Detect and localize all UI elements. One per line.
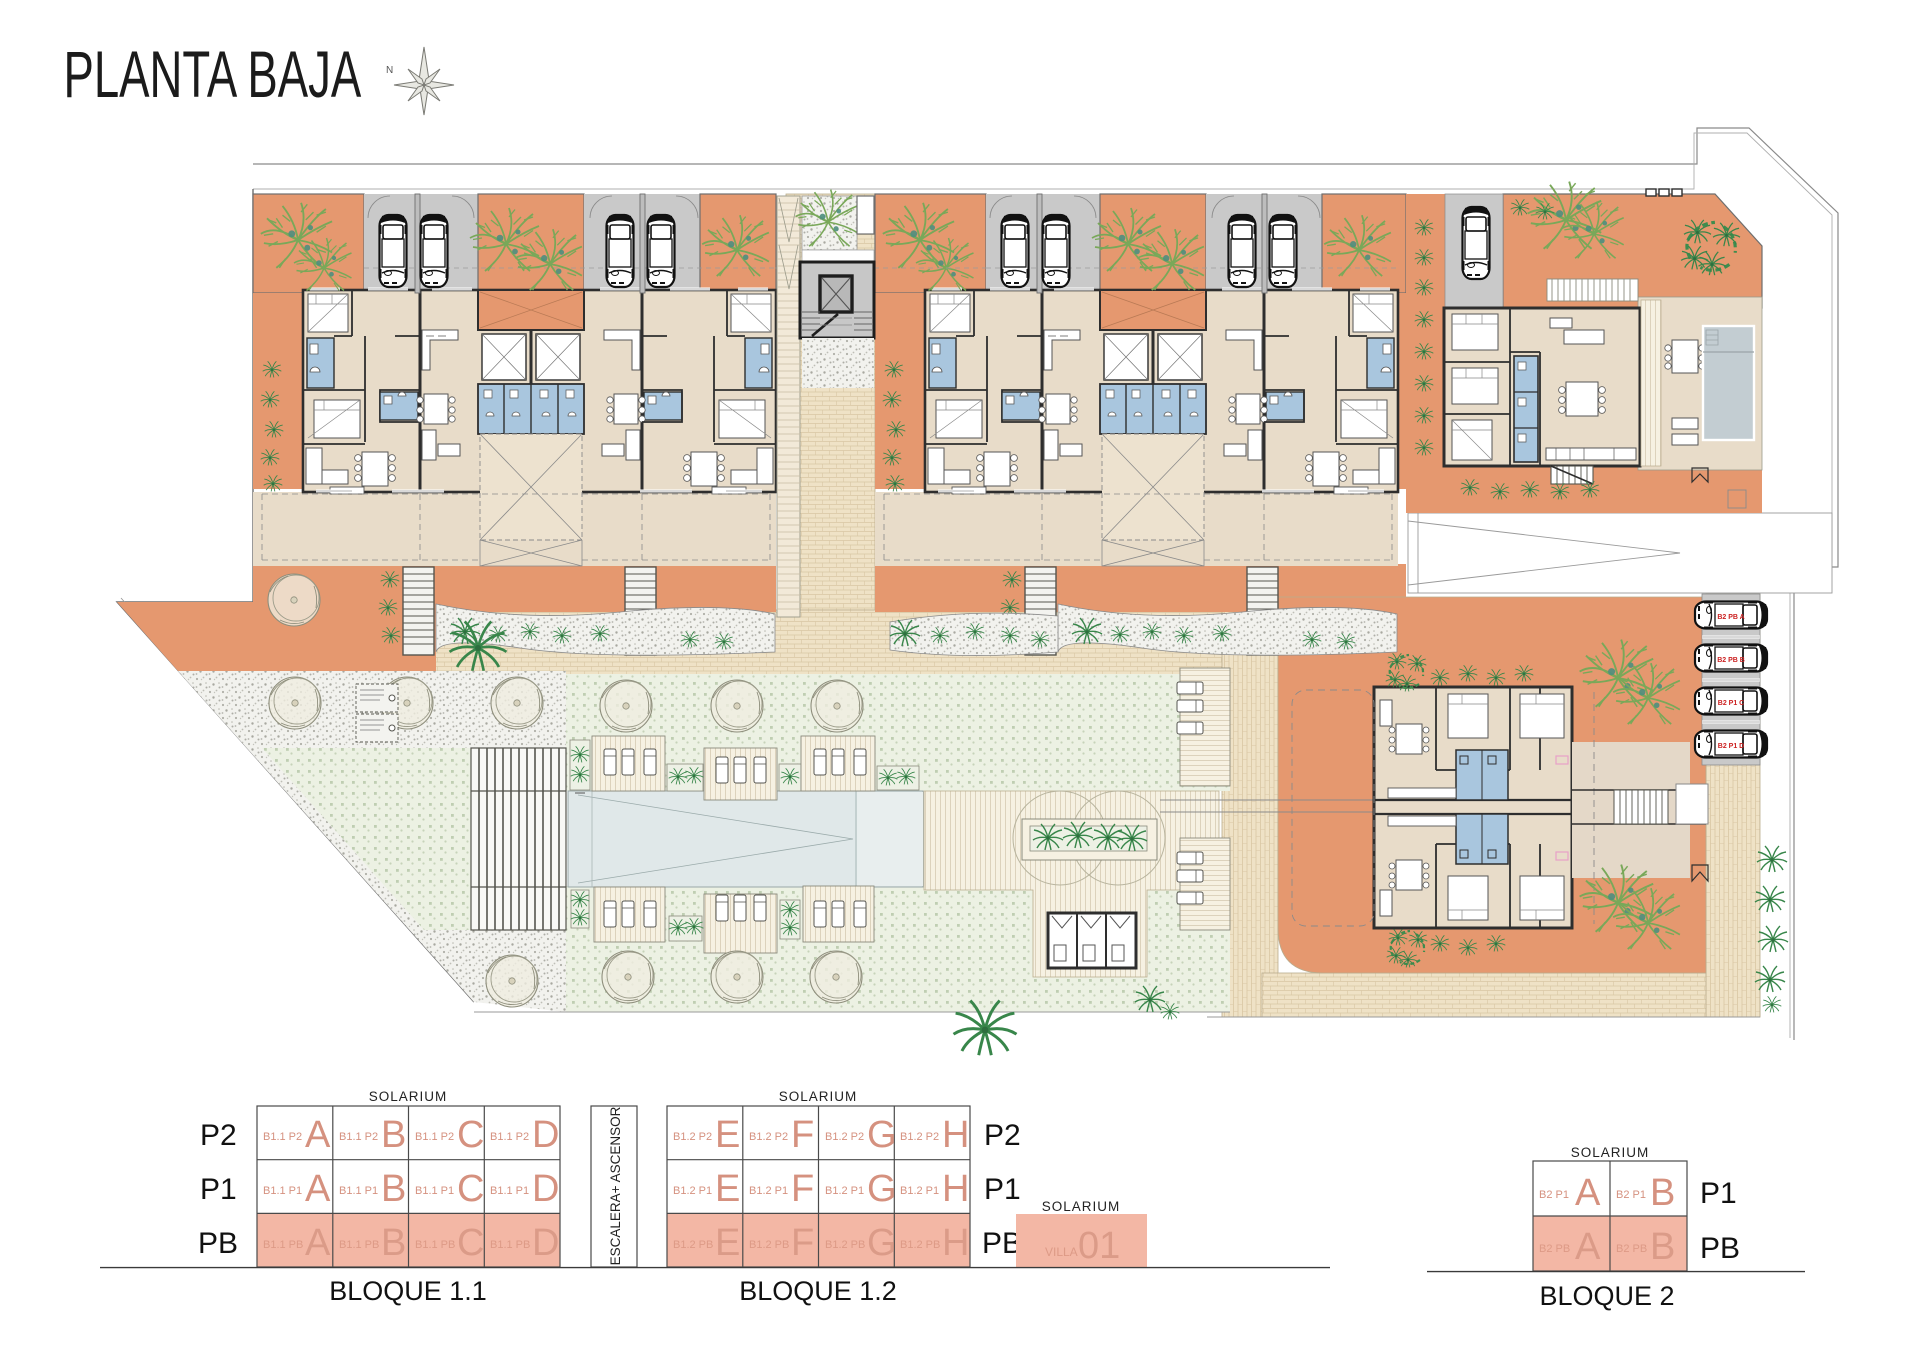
svg-text:PB: PB [1700,1232,1740,1265]
svg-text:B1.1 P1: B1.1 P1 [263,1185,302,1197]
svg-text:B1.1 P2: B1.1 P2 [490,1131,529,1143]
svg-text:B2 PB: B2 PB [1539,1243,1570,1255]
svg-text:SOLARIUM: SOLARIUM [1571,1145,1650,1160]
svg-text:E: E [715,1168,740,1210]
svg-text:B1.1 PB: B1.1 PB [415,1239,455,1251]
svg-text:PLANTA BAJA: PLANTA BAJA [63,39,361,112]
svg-text:F: F [791,1168,814,1210]
svg-text:B1.2 P2: B1.2 P2 [900,1131,939,1143]
svg-text:SOLARIUM: SOLARIUM [369,1089,448,1104]
svg-text:F: F [791,1114,814,1156]
svg-text:B2 PB B: B2 PB B [1717,657,1745,664]
svg-text:C: C [457,1168,484,1210]
svg-text:ESCALERA+ ASCENSOR: ESCALERA+ ASCENSOR [608,1106,623,1265]
svg-text:B1.1 P2: B1.1 P2 [263,1131,302,1143]
svg-text:D: D [532,1168,559,1210]
svg-text:P2: P2 [984,1119,1021,1152]
svg-text:SOLARIUM: SOLARIUM [779,1089,858,1104]
svg-text:B1.1 P1: B1.1 P1 [415,1185,454,1197]
svg-text:C: C [457,1114,484,1156]
svg-text:B: B [381,1168,406,1210]
svg-text:B1.2 PB: B1.2 PB [673,1239,713,1251]
svg-text:B1.1 P2: B1.1 P2 [415,1131,454,1143]
svg-text:B2 P1 D: B2 P1 D [1718,743,1744,750]
svg-text:N: N [386,65,393,76]
svg-text:B1.2 P2: B1.2 P2 [749,1131,788,1143]
svg-text:B: B [381,1114,406,1156]
svg-text:E: E [715,1114,740,1156]
svg-text:F: F [791,1222,814,1264]
svg-text:P1: P1 [984,1173,1021,1206]
svg-text:B1.1 PB: B1.1 PB [339,1239,379,1251]
svg-text:B1.1 PB: B1.1 PB [263,1239,303,1251]
svg-text:BLOQUE 2: BLOQUE 2 [1539,1281,1674,1311]
svg-text:01: 01 [1078,1225,1120,1267]
svg-text:A: A [305,1222,331,1264]
svg-text:B1.2 PB: B1.2 PB [825,1239,865,1251]
svg-text:G: G [867,1114,897,1156]
svg-text:B1.2 P2: B1.2 P2 [673,1131,712,1143]
svg-text:B1.1 P2: B1.1 P2 [339,1131,378,1143]
svg-text:H: H [942,1114,969,1156]
svg-text:B2 P1 C: B2 P1 C [1718,700,1744,707]
svg-text:B1.2 P1: B1.2 P1 [900,1185,939,1197]
svg-text:B1.1 P1: B1.1 P1 [339,1185,378,1197]
svg-text:A: A [305,1168,331,1210]
svg-text:P2: P2 [200,1119,237,1152]
svg-text:H: H [942,1168,969,1210]
svg-text:G: G [867,1168,897,1210]
svg-text:E: E [715,1222,740,1264]
svg-text:B1.2 P1: B1.2 P1 [749,1185,788,1197]
svg-text:P1: P1 [1700,1177,1737,1210]
svg-text:B2 P1: B2 P1 [1539,1189,1569,1201]
svg-text:D: D [532,1222,559,1264]
svg-text:B2 PB A: B2 PB A [1717,614,1744,621]
svg-text:SOLARIUM: SOLARIUM [1042,1199,1121,1214]
svg-text:A: A [305,1114,331,1156]
svg-text:C: C [457,1222,484,1264]
svg-text:B1.2 P1: B1.2 P1 [825,1185,864,1197]
svg-text:B: B [1650,1172,1675,1214]
svg-text:A: A [1575,1172,1601,1214]
svg-text:B2 PB: B2 PB [1616,1243,1647,1255]
svg-text:A: A [1575,1226,1601,1268]
svg-text:B1.2 P1: B1.2 P1 [673,1185,712,1197]
svg-text:G: G [867,1222,897,1264]
svg-text:BLOQUE 1.1: BLOQUE 1.1 [329,1276,487,1306]
svg-text:H: H [942,1222,969,1264]
svg-text:B1.2 PB: B1.2 PB [900,1239,940,1251]
svg-text:B1.2 PB: B1.2 PB [749,1239,789,1251]
svg-text:P1: P1 [200,1173,237,1206]
svg-text:B: B [1650,1226,1675,1268]
svg-text:VILLA: VILLA [1045,1245,1078,1259]
svg-text:D: D [532,1114,559,1156]
svg-text:B: B [381,1222,406,1264]
svg-text:B2 P1: B2 P1 [1616,1189,1646,1201]
svg-text:PB: PB [198,1227,238,1260]
svg-text:B1.2 P2: B1.2 P2 [825,1131,864,1143]
svg-text:B1.1 PB: B1.1 PB [490,1239,530,1251]
svg-text:BLOQUE 1.2: BLOQUE 1.2 [739,1276,897,1306]
svg-text:B1.1 P1: B1.1 P1 [490,1185,529,1197]
